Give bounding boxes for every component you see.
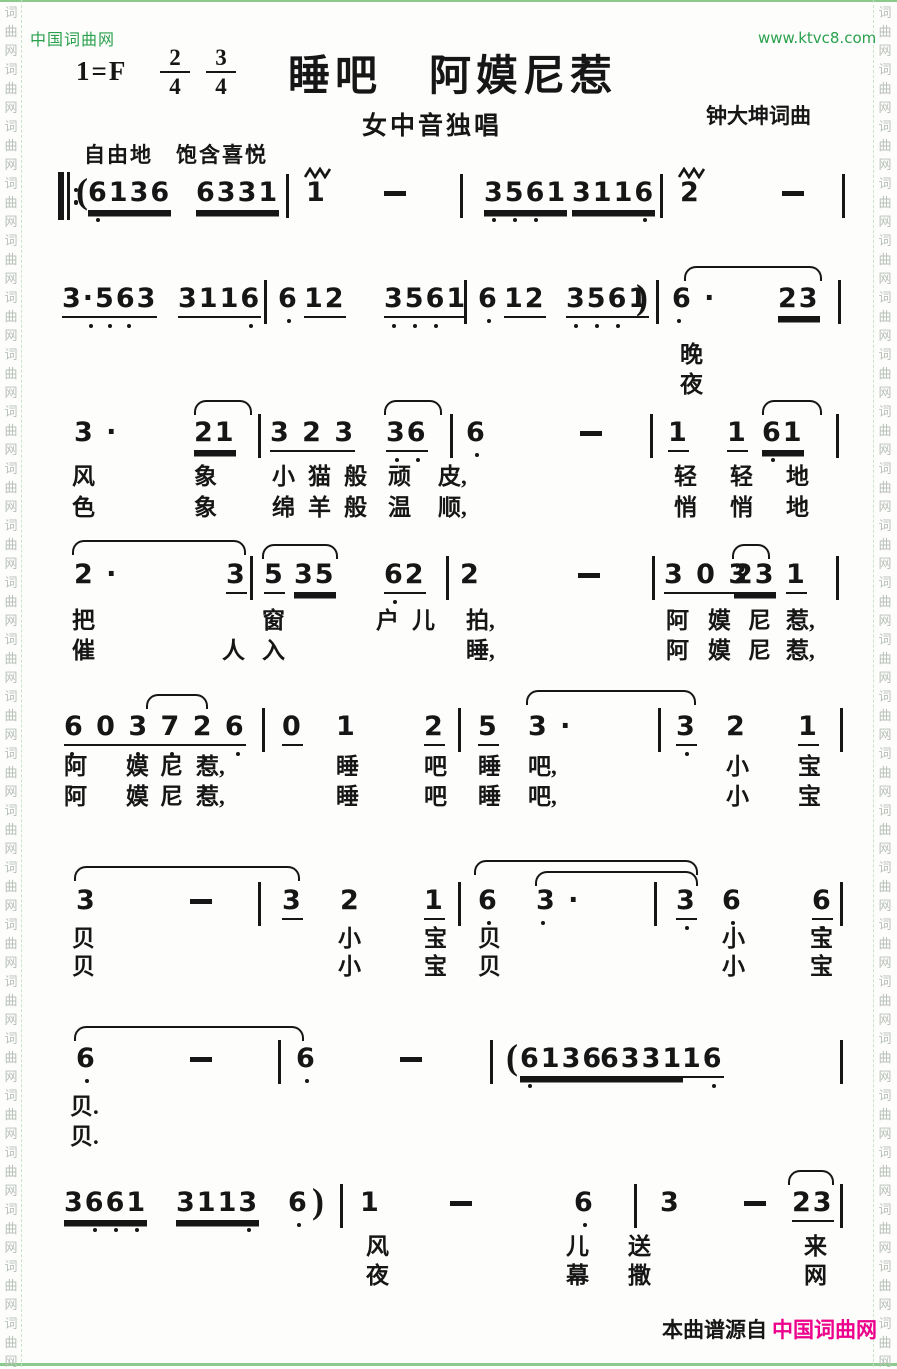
barline — [654, 882, 657, 926]
note-digits: 3661 — [64, 1188, 147, 1222]
lyric-char: 睡, — [466, 638, 495, 664]
note-digits: 2 — [424, 712, 445, 746]
note-group: 3 — [660, 1188, 681, 1218]
note-group: 62 — [384, 560, 426, 594]
lyric-char: 吧 — [424, 754, 447, 780]
octave-dot — [677, 319, 681, 323]
note-group: 6 — [574, 1188, 595, 1218]
slur-arc — [788, 1170, 834, 1185]
note-digits: 35 — [294, 560, 336, 594]
note-digits: 6 — [812, 886, 833, 920]
note-digits: 3561 — [384, 284, 467, 318]
lyric-char: 悄 — [730, 495, 753, 521]
held-note-dash — [190, 1057, 212, 1062]
barline — [650, 414, 653, 458]
note-digits: 62 — [384, 560, 426, 594]
octave-dot — [135, 1228, 139, 1232]
lyric-char: 宝 — [424, 926, 447, 952]
lyric-char: 儿 — [412, 608, 435, 634]
barline — [278, 1040, 281, 1084]
octave-dot — [416, 458, 420, 462]
note-group: 6 — [478, 886, 499, 916]
parenthesis: ) — [636, 280, 648, 314]
thick-bar — [58, 172, 64, 220]
lyric-char: 嫫 — [708, 638, 731, 664]
lyric-char: 贝. — [70, 1094, 99, 1120]
thin-bar — [67, 172, 70, 220]
note-digits: 2 — [460, 560, 481, 590]
barline — [460, 174, 463, 218]
octave-dot — [492, 218, 496, 222]
note-group: 5 — [478, 712, 499, 746]
lyric-char: 绵 — [272, 495, 295, 521]
lyric-char: 睡 — [336, 754, 359, 780]
octave-dot — [595, 324, 599, 328]
barline — [446, 556, 449, 600]
held-note-dash — [782, 191, 804, 196]
note-digits: 6 — [278, 284, 299, 314]
lyric-char: 宝 — [798, 754, 821, 780]
lyric-char: 皮, — [438, 464, 467, 490]
note-group: 6331 — [600, 1044, 683, 1078]
lyric-char: 幕 — [566, 1263, 589, 1289]
lyric-char: 人 — [222, 638, 245, 664]
note-group: 1 — [336, 712, 357, 742]
note-digits: 6331 — [600, 1044, 683, 1078]
held-note-dash — [190, 899, 212, 904]
note-digits: 6 — [288, 1188, 309, 1218]
note-group: 6 — [76, 1044, 97, 1074]
lyric-char: 惹, — [786, 638, 815, 664]
note-digits: 3 · — [74, 418, 118, 448]
note-digits: 6331 — [196, 178, 279, 212]
lyric-char: 顽 — [388, 464, 411, 490]
note-group: 3 2 3 — [270, 418, 355, 452]
note-digits: 2 · — [74, 560, 118, 590]
barline — [840, 708, 843, 752]
lyric-char: 惹, — [196, 784, 225, 810]
note-group: 2 — [424, 712, 445, 746]
lyric-char: 阿 — [666, 608, 689, 634]
lyric-char: 嫫 — [126, 784, 149, 810]
lyric-char: 象 — [194, 495, 217, 521]
note-group: 1 — [360, 1188, 381, 1218]
note-digits: 3 · — [536, 886, 580, 916]
note-group: 6 0 3 7 2 6 — [64, 712, 246, 746]
octave-dot — [114, 1228, 118, 1232]
lyric-char: 宝 — [810, 954, 833, 980]
footer-source-label: 本曲谱源自 — [662, 1314, 767, 1344]
slur-arc — [535, 871, 698, 886]
note-digits: 1 — [336, 712, 357, 742]
note-digits: 6136 — [88, 178, 171, 212]
lyric-char: 贝. — [70, 1124, 99, 1150]
barline — [250, 556, 253, 600]
note-group: 5 — [264, 560, 285, 594]
note-group: 3 · — [528, 712, 572, 742]
slur-arc — [72, 540, 246, 555]
lyric-char: 小 — [272, 464, 295, 490]
note-group: 3 — [676, 886, 697, 920]
lyric-char: 地 — [786, 495, 809, 521]
octave-dot — [434, 324, 438, 328]
music-score: (6136633113561311623·5633116612356161235… — [0, 0, 897, 1367]
lyric-char: 儿 — [566, 1234, 589, 1260]
lyric-char: 小 — [726, 754, 749, 780]
note-digits: 1 — [798, 712, 819, 746]
octave-dot — [393, 600, 397, 604]
note-digits: 3116 — [178, 284, 261, 318]
lyric-char: 入 — [262, 638, 285, 664]
lyric-char: 睡 — [478, 784, 501, 810]
slur-arc — [74, 1026, 304, 1041]
note-digits: 3 — [676, 886, 697, 920]
octave-dot — [528, 1084, 532, 1088]
lyric-char: 撒 — [628, 1263, 651, 1289]
slur-arc — [732, 544, 770, 559]
barline — [652, 556, 655, 600]
note-group: 6 — [296, 1044, 317, 1074]
octave-dot — [685, 752, 689, 756]
lyric-char: 宝 — [798, 784, 821, 810]
octave-dot — [534, 218, 538, 222]
lyric-char: 吧, — [528, 754, 557, 780]
lyric-char: 吧 — [424, 784, 447, 810]
note-digits: 21 — [194, 418, 236, 452]
barline — [450, 414, 453, 458]
barline — [842, 174, 845, 218]
note-group: 3116 — [178, 284, 261, 318]
barline — [286, 174, 289, 218]
note-group: 6 — [288, 1188, 309, 1218]
note-digits: 3113 — [176, 1188, 259, 1222]
held-note-dash — [744, 1201, 766, 1206]
note-group: 1 — [798, 712, 819, 746]
barline — [656, 280, 659, 324]
lyric-char: 尼 — [748, 608, 771, 634]
note-digits: 6 — [296, 1044, 317, 1074]
note-group: 3561 — [384, 284, 467, 318]
lyric-char: 拍, — [466, 608, 495, 634]
barline — [836, 414, 839, 458]
lyric-char: 般 — [344, 495, 367, 521]
held-note-dash — [578, 573, 600, 578]
note-digits: 1 — [786, 560, 807, 594]
note-digits: 3 — [76, 886, 97, 916]
note-digits: 3 — [282, 886, 303, 920]
note-digits: 1 — [727, 418, 748, 452]
lyric-char: 猫 — [308, 464, 331, 490]
barline — [258, 882, 261, 926]
lyric-char: 惹, — [786, 608, 815, 634]
note-group: 6136 — [88, 178, 171, 212]
note-group: 2 — [680, 178, 701, 208]
lyric-char: 轻 — [730, 464, 753, 490]
note-digits: 61 — [762, 418, 804, 452]
octave-dot — [731, 921, 735, 925]
lyric-char: 嫫 — [708, 608, 731, 634]
note-group: 3 · — [536, 886, 580, 916]
octave-dot — [93, 1228, 97, 1232]
note-group: 3 — [76, 886, 97, 916]
note-group: 6 — [478, 284, 499, 314]
lyric-char: 把 — [72, 608, 95, 634]
lyric-char: 吧, — [528, 784, 557, 810]
barline — [458, 708, 461, 752]
lyric-char: 宝 — [424, 954, 447, 980]
octave-dot — [89, 324, 93, 328]
octave-dot — [96, 218, 100, 222]
octave-dot — [643, 218, 647, 222]
note-digits: 23 — [778, 284, 820, 318]
note-digits: 3 · — [528, 712, 572, 742]
held-note-dash — [450, 1201, 472, 1206]
note-group: 3561 — [484, 178, 567, 212]
octave-dot — [685, 926, 689, 930]
note-group: 1 — [727, 418, 748, 452]
lyric-char: 轻 — [674, 464, 697, 490]
barline — [340, 1184, 343, 1228]
octave-dot — [395, 458, 399, 462]
note-digits: 6 — [76, 1044, 97, 1074]
note-group: 2 — [726, 712, 747, 742]
octave-dot — [247, 1228, 251, 1232]
barline — [840, 1184, 843, 1228]
note-group: 1 — [668, 418, 689, 452]
slur-arc — [194, 400, 252, 415]
note-digits: 1 — [360, 1188, 381, 1218]
lyric-char: 色 — [72, 495, 95, 521]
lyric-char: 风 — [366, 1234, 389, 1260]
lyric-char: 小 — [722, 926, 745, 952]
slur-arc — [146, 694, 208, 709]
octave-dot — [297, 1223, 301, 1227]
barline — [634, 1184, 637, 1228]
note-group: 3 · — [74, 418, 118, 448]
parenthesis: ( — [76, 174, 88, 208]
note-digits: 0 — [282, 712, 303, 746]
held-note-dash — [580, 431, 602, 436]
note-group: 16 — [682, 1044, 724, 1078]
note-digits: 23 — [792, 1188, 834, 1222]
slur-arc — [384, 400, 442, 415]
note-group: 12 — [304, 284, 346, 318]
note-digits: 2 — [340, 886, 361, 916]
lyric-char: 小 — [338, 926, 361, 952]
octave-dot — [487, 319, 491, 323]
note-digits: 6 — [478, 886, 499, 916]
octave-dot — [392, 324, 396, 328]
octave-dot — [487, 921, 491, 925]
note-digits: 3 — [660, 1188, 681, 1218]
note-group: 3 — [226, 560, 247, 594]
barline — [658, 708, 661, 752]
lyric-char: 阿 — [666, 638, 689, 664]
note-digits: 23 — [734, 560, 776, 594]
note-group: 6 — [278, 284, 299, 314]
lyric-char: 尼 — [748, 638, 771, 664]
note-digits: 2 — [680, 178, 701, 208]
octave-dot — [85, 1079, 89, 1083]
barline — [458, 882, 461, 926]
octave-dot — [108, 324, 112, 328]
note-group: 2 — [340, 886, 361, 916]
note-digits: 6 — [478, 284, 499, 314]
lyric-char: 晚 — [680, 342, 703, 368]
lyric-char: 小 — [722, 954, 745, 980]
lyric-char: 催 — [72, 638, 95, 664]
note-group: 3 — [676, 712, 697, 746]
lyric-char: 悄 — [674, 495, 697, 521]
octave-dot — [475, 453, 479, 457]
slur-arc — [762, 400, 822, 415]
note-digits: 6 — [574, 1188, 595, 1218]
note-group: 36 — [386, 418, 428, 452]
lyric-char: 象 — [194, 464, 217, 490]
note-digits: 1 — [306, 178, 327, 208]
note-digits: 3·563 — [62, 284, 157, 318]
note-digits: 5 — [478, 712, 499, 746]
note-digits: 12 — [304, 284, 346, 318]
lyric-char: 送 — [628, 1234, 651, 1260]
lyric-char: 贝 — [72, 954, 95, 980]
note-group: 3116 — [572, 178, 655, 212]
note-group: 23 — [792, 1188, 834, 1222]
octave-dot — [305, 1079, 309, 1083]
note-group: 6 — [812, 886, 833, 920]
barline — [490, 1040, 493, 1084]
note-group: 3113 — [176, 1188, 259, 1222]
note-digits: 36 — [386, 418, 428, 452]
held-note-dash — [384, 191, 406, 196]
lyric-char: 羊 — [308, 495, 331, 521]
note-digits: 3 2 3 — [270, 418, 355, 452]
barline — [840, 882, 843, 926]
octave-dot — [127, 324, 131, 328]
trill-icon — [678, 156, 708, 168]
parenthesis: ( — [506, 1040, 518, 1074]
barline — [264, 280, 267, 324]
note-group: 21 — [194, 418, 236, 452]
lyric-char: 贝 — [478, 926, 501, 952]
octave-dot — [583, 1223, 587, 1227]
octave-dot — [513, 218, 517, 222]
note-group: 6 — [466, 418, 487, 448]
octave-dot — [287, 319, 291, 323]
octave-dot — [712, 1084, 716, 1088]
note-group: 3·563 — [62, 284, 157, 318]
note-group: 12 — [504, 284, 546, 318]
note-digits: 6136 — [520, 1044, 603, 1078]
octave-dot — [574, 324, 578, 328]
note-group: 2 · — [74, 560, 118, 590]
note-group: 1 — [786, 560, 807, 594]
lyric-char: 温 — [388, 495, 411, 521]
lyric-char: 惹, — [196, 754, 225, 780]
slur-arc — [526, 690, 696, 705]
note-group: 6136 — [520, 1044, 603, 1078]
trill-icon — [304, 156, 334, 168]
note-digits: 3 — [226, 560, 247, 594]
lyric-char: 尼 — [160, 784, 183, 810]
octave-dot — [249, 324, 253, 328]
note-digits: 5 — [264, 560, 285, 594]
note-group: 61 — [762, 418, 804, 452]
lyric-char: 小 — [726, 784, 749, 810]
note-digits: 6 — [466, 418, 487, 448]
note-group: 0 — [282, 712, 303, 746]
note-group: 6 · — [672, 284, 716, 314]
lyric-char: 网 — [804, 1263, 827, 1289]
note-group: 3 — [282, 886, 303, 920]
note-group: 3661 — [64, 1188, 147, 1222]
note-digits: 12 — [504, 284, 546, 318]
lyric-char: 地 — [786, 464, 809, 490]
note-group: 6331 — [196, 178, 279, 212]
barline — [258, 414, 261, 458]
barline — [660, 174, 663, 218]
barline — [262, 708, 265, 752]
parenthesis: ) — [312, 1184, 324, 1218]
lyric-char: 阿 — [64, 754, 87, 780]
lyric-char: 夜 — [366, 1263, 389, 1289]
lyric-char: 顺, — [438, 495, 467, 521]
held-note-dash — [400, 1057, 422, 1062]
slur-arc — [74, 866, 300, 881]
note-group: 1 — [424, 886, 445, 920]
lyric-char: 风 — [72, 464, 95, 490]
note-digits: 2 — [726, 712, 747, 742]
note-digits: 6 · — [672, 284, 716, 314]
note-group: 1 — [306, 178, 327, 208]
barline — [838, 280, 841, 324]
note-digits: 3116 — [572, 178, 655, 212]
note-digits: 6 0 3 7 2 6 — [64, 712, 246, 746]
octave-dot — [413, 324, 417, 328]
footer-site-link[interactable]: 中国词曲网 — [772, 1314, 877, 1344]
note-digits: 1 — [668, 418, 689, 452]
octave-dot — [616, 324, 620, 328]
note-digits: 16 — [682, 1044, 724, 1078]
barline — [464, 280, 467, 324]
note-group: 2 — [460, 560, 481, 590]
lyric-char: 阿 — [64, 784, 87, 810]
slur-arc — [262, 544, 338, 559]
lyric-char: 来 — [804, 1234, 827, 1260]
barline — [836, 556, 839, 600]
octave-dot — [771, 458, 775, 462]
note-group: 23 — [734, 560, 776, 594]
lyric-char: 小 — [338, 954, 361, 980]
lyric-char: 般 — [344, 464, 367, 490]
repeat-open-barline — [58, 172, 78, 220]
lyric-char: 宝 — [810, 926, 833, 952]
lyric-char: 睡 — [336, 784, 359, 810]
lyric-char: 尼 — [160, 754, 183, 780]
slur-arc — [684, 266, 822, 281]
lyric-char: 夜 — [680, 372, 703, 398]
lyric-char: 窗 — [262, 608, 285, 634]
note-group: 35 — [294, 560, 336, 594]
lyric-char: 睡 — [478, 754, 501, 780]
lyric-char: 贝 — [72, 926, 95, 952]
octave-dot — [236, 752, 240, 756]
note-group: 6 — [722, 886, 743, 916]
note-digits: 3 — [676, 712, 697, 746]
barline — [840, 1040, 843, 1084]
lyric-char: 贝 — [478, 954, 501, 980]
lyric-char: 嫫 — [126, 754, 149, 780]
